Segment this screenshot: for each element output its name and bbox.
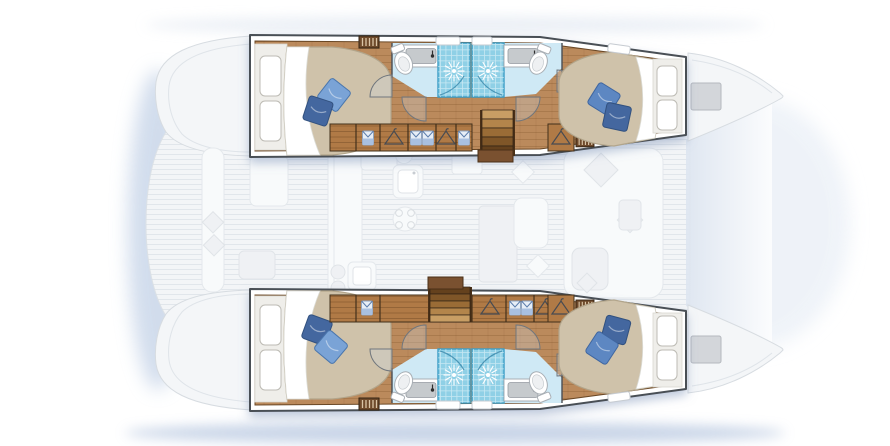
starboard-hull — [250, 287, 686, 411]
lounge-table — [619, 200, 641, 230]
headboard-shelf — [657, 350, 677, 380]
shadow-top — [145, 16, 765, 34]
bow-hatch-starboard — [691, 336, 721, 363]
headboard-shelf — [260, 305, 281, 345]
galley-burner — [331, 265, 345, 279]
catamaran-floorplan-image — [0, 0, 890, 446]
pillow-icon — [602, 102, 632, 132]
cockpit-seat — [239, 251, 275, 279]
stairwell-cabinet-starboard — [428, 277, 463, 289]
cockpit-table — [250, 156, 288, 206]
headboard-shelf — [657, 316, 677, 346]
folded-shirt-icon — [411, 131, 422, 145]
staircase-starboard — [428, 287, 472, 322]
step — [482, 110, 513, 119]
step — [482, 119, 513, 128]
headboard-shelf — [657, 66, 677, 96]
headboard-shelf — [260, 101, 281, 141]
step — [482, 128, 513, 137]
folded-shirt-icon — [363, 131, 374, 145]
dining-table — [479, 206, 517, 282]
window — [472, 37, 492, 45]
staircase-port — [480, 110, 515, 156]
floorplan-canvas — [0, 0, 890, 446]
window — [436, 37, 460, 45]
window — [472, 401, 492, 409]
shadow-bottom — [125, 422, 785, 444]
window — [436, 401, 460, 409]
folded-shirt-icon — [362, 301, 373, 315]
folded-shirt-icon — [459, 131, 470, 145]
folded-shirt-icon — [423, 131, 434, 145]
headboard-shelf — [260, 56, 281, 96]
galley-aft-basin — [353, 267, 371, 285]
step — [430, 301, 470, 308]
folded-shirt-icon — [510, 301, 521, 315]
folded-shirt-icon — [522, 301, 533, 315]
vent-grate-icon — [359, 36, 379, 48]
bow-hatch-port — [691, 83, 721, 110]
headboard-shelf — [260, 350, 281, 390]
port-wardrobe-strip — [330, 124, 472, 151]
stairwell-cabinet-port — [478, 150, 513, 162]
step — [430, 308, 470, 315]
port-hull — [250, 35, 686, 157]
step — [482, 137, 513, 146]
step — [430, 294, 470, 301]
dining-bench — [514, 198, 548, 248]
step — [430, 315, 470, 322]
vent-grate-icon — [359, 398, 379, 410]
galley-faucet — [413, 172, 416, 175]
headboard-shelf — [657, 100, 677, 130]
